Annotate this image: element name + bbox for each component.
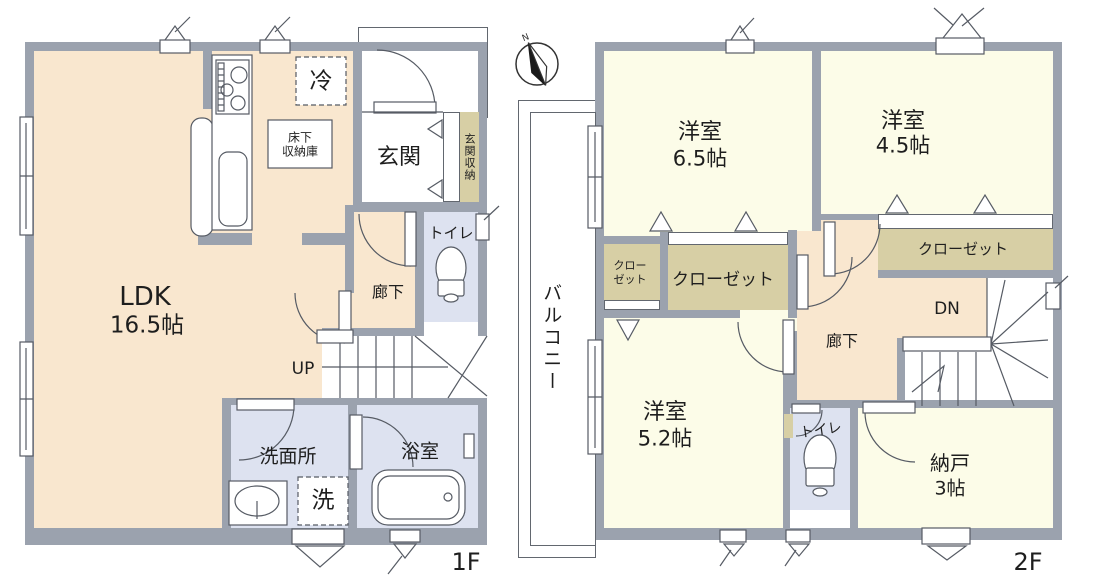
room-label-bathroom: 浴室 xyxy=(401,442,439,463)
wall-segment xyxy=(348,405,357,528)
wall-segment xyxy=(302,233,347,245)
wall-segment xyxy=(415,212,424,336)
stairs-1f xyxy=(322,336,487,398)
entrance-step xyxy=(362,51,478,112)
stairs-2f-winder xyxy=(987,278,1053,408)
wall-segment xyxy=(878,270,1062,278)
label-hallway-1f: 廊下 xyxy=(372,283,404,300)
label-washer: 洗 xyxy=(312,489,335,514)
floor-label-1f: 1F xyxy=(451,550,480,576)
wall-segment xyxy=(600,236,662,244)
toilet-threshold-1f xyxy=(424,322,478,336)
closet-wide-door xyxy=(668,232,788,245)
compass-icon: N xyxy=(516,30,558,88)
wall-segment xyxy=(222,398,231,528)
wall-segment xyxy=(353,42,362,212)
room-size-ldk: 16.5帖 xyxy=(110,314,184,339)
label-hallway-2f: 廊下 xyxy=(826,332,858,349)
entrance-storage-door xyxy=(443,112,460,202)
toilet-threshold-2f xyxy=(790,510,850,528)
room-label-yoshitsu-65: 洋室 xyxy=(678,121,722,145)
label-underfloor-1: 床下 xyxy=(288,132,312,145)
wall-segment xyxy=(850,408,858,528)
floor-label-2f: 2F xyxy=(1013,550,1042,576)
room-size-yoshitsu-65: 6.5帖 xyxy=(673,148,727,171)
label-stairs-up: UP xyxy=(292,360,315,378)
wall-segment xyxy=(790,400,1053,408)
wall-segment xyxy=(345,205,354,293)
closet-45-door xyxy=(878,214,1053,229)
label-fridge: 冷 xyxy=(310,70,333,95)
hallway-2f xyxy=(878,278,987,338)
wall-segment xyxy=(821,214,878,220)
room-size-nando: 3帖 xyxy=(934,479,965,500)
label-entrance-storage: 玄関収納 xyxy=(463,133,475,181)
svg-text:N: N xyxy=(521,32,531,44)
label-stairs-down: DN xyxy=(934,300,960,318)
wall-segment xyxy=(812,51,821,231)
closet-small-door xyxy=(604,300,660,310)
wall-segment xyxy=(322,328,424,336)
wall-segment xyxy=(788,230,797,318)
wall-segment xyxy=(897,338,905,408)
label-closet-small-2: ゼット xyxy=(614,274,647,286)
room-bathroom xyxy=(357,405,478,528)
wall-segment xyxy=(222,398,487,405)
room-yoshitsu-45 xyxy=(821,51,1053,214)
room-label-yoshitsu-45: 洋室 xyxy=(881,110,925,134)
room-label-washroom: 洗面所 xyxy=(259,447,316,468)
room-label-toilet-1f: トイレ xyxy=(428,225,473,241)
label-balcony: バルコニー xyxy=(541,283,562,393)
room-label-yoshitsu-52: 洋室 xyxy=(643,401,687,425)
floor-plan: N xyxy=(0,0,1100,586)
wall-segment xyxy=(203,51,212,109)
hallway-2f xyxy=(797,231,821,338)
label-closet-wide: クローゼット xyxy=(672,271,774,289)
label-closet-45: クローゼット xyxy=(918,241,1008,257)
room-label-ldk: LDK xyxy=(119,283,171,311)
room-label-entrance: 玄関 xyxy=(377,146,421,170)
wall-segment xyxy=(600,310,740,318)
room-label-nando: 納戸 xyxy=(930,453,970,475)
room-size-yoshitsu-45: 4.5帖 xyxy=(876,135,930,158)
stairs-2f xyxy=(905,338,987,408)
wall-segment xyxy=(783,372,790,528)
wall-segment xyxy=(198,233,252,245)
wall-segment xyxy=(353,202,479,212)
room-yoshitsu-52 xyxy=(604,318,783,528)
toilet-shelf xyxy=(784,414,793,438)
wall-segment xyxy=(660,232,668,318)
label-underfloor-2: 収納庫 xyxy=(282,146,318,159)
label-closet-small-1: クロー xyxy=(614,260,647,272)
room-size-yoshitsu-52: 5.2帖 xyxy=(638,428,692,451)
